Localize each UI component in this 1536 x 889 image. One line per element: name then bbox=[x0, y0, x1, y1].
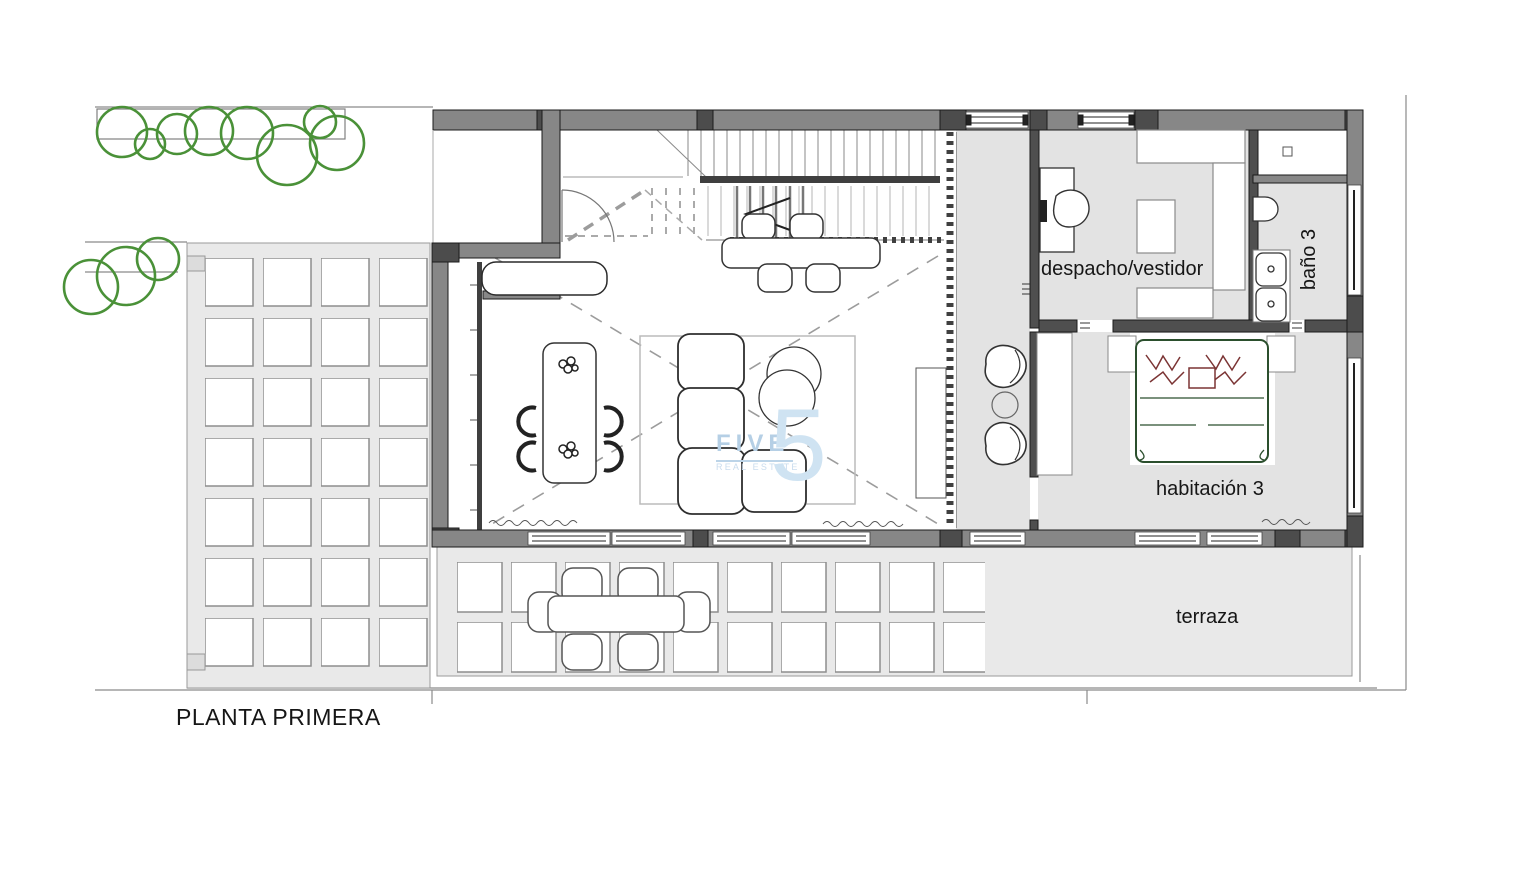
kitchen-island bbox=[518, 343, 621, 483]
wardrobe bbox=[1037, 333, 1072, 475]
coffee-table bbox=[759, 347, 821, 426]
toilet bbox=[1253, 197, 1278, 221]
hall-despacho-wall bbox=[1030, 130, 1039, 328]
room-label-bano: baño 3 bbox=[1278, 223, 1342, 295]
nightstand-left bbox=[1108, 336, 1136, 372]
room-label-terraza: terraza bbox=[1176, 606, 1238, 629]
floor-plan-drawing bbox=[0, 0, 1536, 889]
monitor bbox=[1040, 200, 1047, 222]
plan-title: PLANTA PRIMERA bbox=[176, 704, 381, 731]
room-label-despacho: despacho/vestidor bbox=[1041, 258, 1203, 281]
living-room-furniture bbox=[640, 334, 946, 514]
desk-chair bbox=[1054, 190, 1089, 227]
pergola-tile-grid bbox=[187, 243, 430, 688]
kitchen-counter bbox=[482, 262, 607, 295]
room-label-bano-text: baño 3 bbox=[1298, 228, 1321, 289]
dining-table-set bbox=[722, 214, 880, 292]
tv-console bbox=[916, 368, 946, 498]
shower-partition bbox=[1253, 175, 1347, 183]
bed bbox=[1136, 340, 1268, 462]
floor-plan-page: despacho/vestidor baño 3 habitación 3 te… bbox=[0, 0, 1536, 889]
nightstand-right bbox=[1267, 336, 1295, 372]
room-label-habitacion: habitación 3 bbox=[1156, 478, 1264, 501]
